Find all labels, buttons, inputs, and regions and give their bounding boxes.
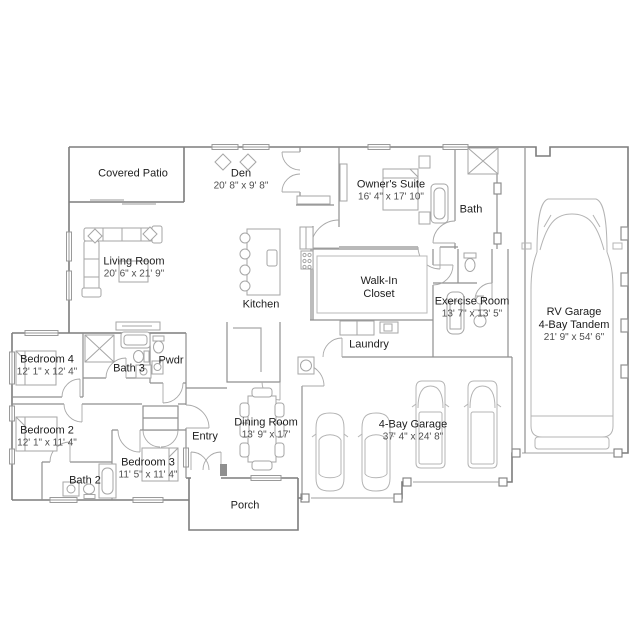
exercise-bike-icon	[473, 296, 487, 327]
truck-icon	[464, 381, 501, 468]
car-icon	[312, 413, 348, 491]
toilet-icon	[464, 253, 476, 272]
dining-table-icon	[240, 388, 284, 470]
dresser-icon	[340, 164, 347, 201]
truck-icon	[412, 381, 449, 468]
den-accent-table-icons	[215, 154, 256, 170]
laundry-fixtures	[298, 321, 398, 374]
vehicles	[312, 199, 622, 491]
bedroom2-bed-icon	[16, 417, 57, 451]
coffee-table-icon	[119, 261, 148, 282]
bedroom3-bed-icon	[142, 448, 178, 481]
toilet-icon	[153, 336, 164, 353]
fridge-icon	[300, 227, 313, 249]
pwdr-fixtures	[152, 336, 164, 374]
nightstand-icon	[419, 212, 430, 224]
kitchen-island-icon	[240, 229, 280, 295]
owners-bath-fixtures	[431, 148, 498, 272]
owners-bed-icon	[340, 156, 430, 224]
exercise-equipment	[447, 292, 487, 334]
rv-icon	[522, 199, 622, 449]
island-sink-icon	[267, 250, 277, 266]
sofa-icon	[82, 226, 162, 297]
entry-column	[220, 464, 227, 476]
kitchen-cabinet-icon	[297, 196, 330, 204]
bath3-fixtures	[85, 332, 151, 378]
toilet-icon	[134, 351, 150, 363]
bath2-fixtures	[63, 464, 116, 499]
toilet-icon	[84, 484, 96, 499]
furniture	[16, 148, 498, 499]
walk-in-closet-shelves	[317, 256, 427, 313]
floor-plan: Covered Patio Den 20' 8" x 9' 8" Owner's…	[0, 0, 639, 639]
car-icon	[358, 413, 394, 491]
range-icon	[301, 251, 313, 269]
floor-plan-drawing	[0, 0, 639, 639]
bedroom4-bed-icon	[16, 351, 56, 385]
nightstand-icon	[419, 156, 430, 168]
